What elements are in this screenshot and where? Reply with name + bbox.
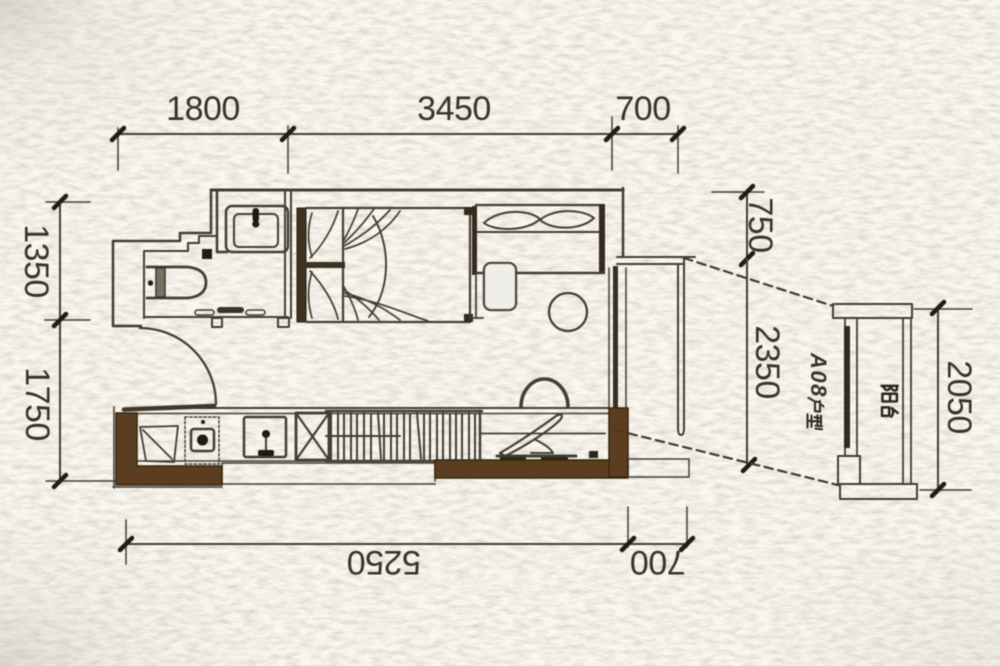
svg-text:1350: 1350 [17, 224, 55, 298]
svg-text:1750: 1750 [18, 367, 56, 441]
svg-text:750: 750 [741, 197, 779, 252]
svg-text:2350: 2350 [748, 325, 786, 399]
svg-text:A08: A08 [806, 352, 831, 398]
svg-text:700: 700 [615, 90, 670, 128]
svg-text:700: 700 [630, 543, 685, 581]
svg-text:2050: 2050 [940, 360, 978, 434]
svg-text:5250: 5250 [347, 543, 421, 581]
svg-text:3450: 3450 [417, 90, 491, 128]
svg-text:1800: 1800 [166, 90, 240, 128]
